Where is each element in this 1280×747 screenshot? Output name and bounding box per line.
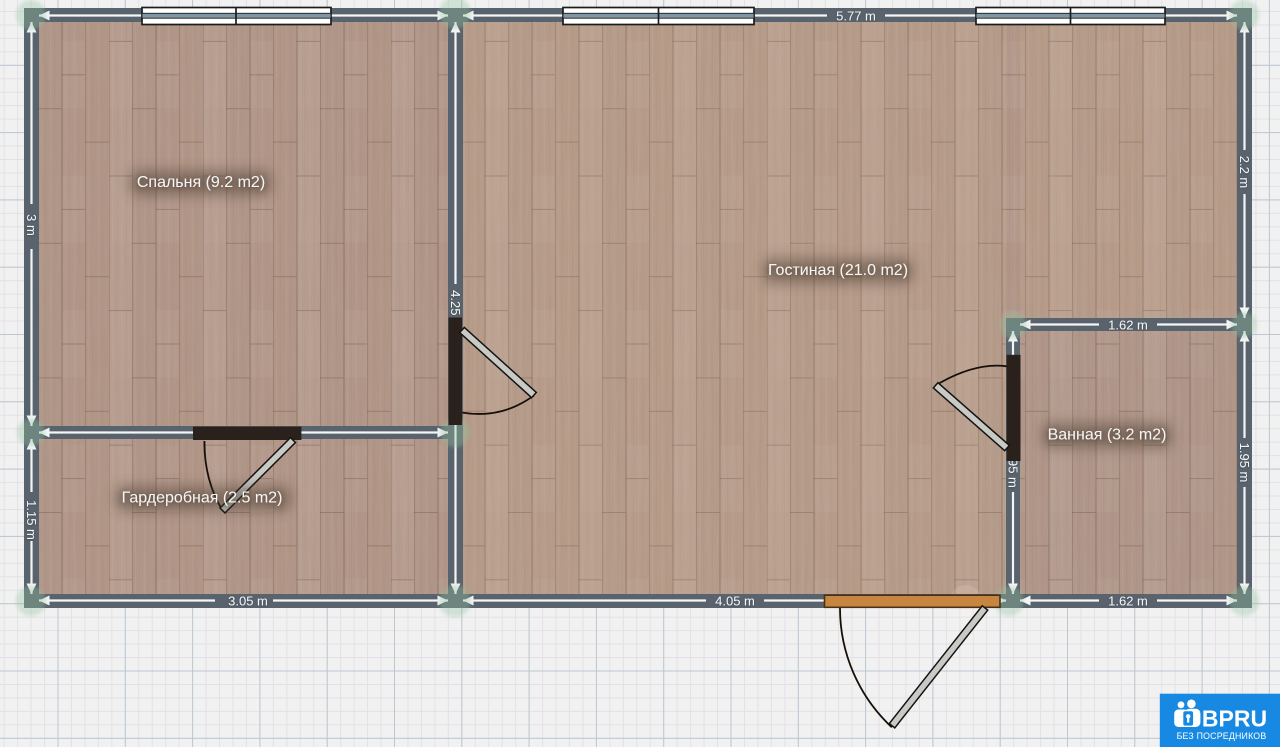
svg-text:1.15 m: 1.15 m [24,500,39,540]
svg-text:3.05 m: 3.05 m [228,593,268,608]
svg-text:BPRU: BPRU [1202,706,1267,732]
svg-text:1.95 m: 1.95 m [1237,443,1252,483]
svg-text:Спальня (9.2 m2): Спальня (9.2 m2) [137,174,265,191]
svg-text:1.62 m: 1.62 m [1108,593,1148,608]
svg-text:5.77 m: 5.77 m [836,8,876,23]
svg-text:3 m: 3 m [24,214,39,236]
svg-text:Ванная (3.2 m2): Ванная (3.2 m2) [1048,427,1167,444]
svg-text:БЕЗ ПОСРЕДНИКОВ: БЕЗ ПОСРЕДНИКОВ [1177,731,1267,741]
svg-text:1.62 m: 1.62 m [1108,317,1148,332]
svg-text:4.05 m: 4.05 m [715,593,755,608]
svg-text:Гостиная (21.0 m2): Гостиная (21.0 m2) [768,262,908,279]
svg-text:Гардеробная (2.5 m2): Гардеробная (2.5 m2) [122,490,283,507]
svg-text:2.2 m: 2.2 m [1237,156,1252,189]
